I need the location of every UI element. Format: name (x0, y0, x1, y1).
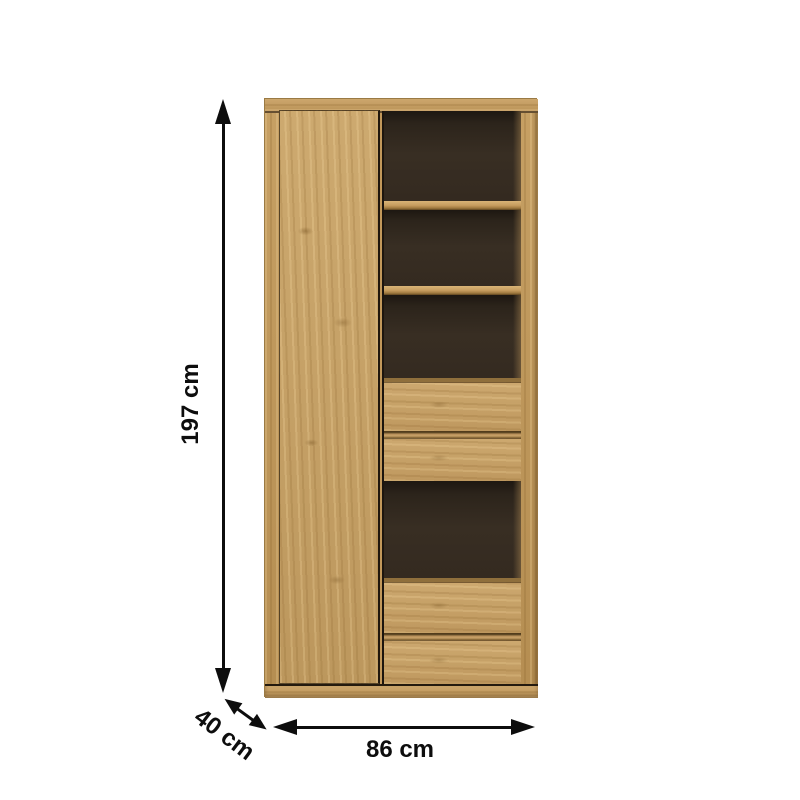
open-shelf-compartment-4 (384, 481, 521, 582)
arrow-line (222, 119, 225, 673)
drawer-gap-2 (384, 633, 521, 640)
drawer-1 (384, 382, 521, 431)
cabinet (264, 98, 537, 697)
arrow-line (291, 726, 517, 729)
drawer-3 (384, 582, 521, 633)
arrowhead-right-icon (511, 719, 535, 735)
cabinet-left-side-panel (265, 99, 279, 698)
product-dimension-diagram: 197 cm 40 cm 86 cm (0, 0, 800, 800)
cabinet-right-column (382, 111, 521, 684)
arrowhead-down-icon (215, 668, 231, 693)
open-shelf-compartment-1 (384, 111, 521, 201)
width-dimension-label: 86 cm (366, 736, 434, 764)
cabinet-right-side-panel (519, 99, 538, 698)
shelf-divider-2 (384, 286, 521, 295)
open-shelf-compartment-2 (384, 210, 521, 286)
drawer-2 (384, 438, 521, 481)
height-dimension-label: 197 cm (177, 363, 205, 444)
cabinet-door (279, 110, 380, 684)
open-shelf-compartment-3 (384, 295, 521, 382)
drawer-gap-1 (384, 431, 521, 438)
cabinet-base-panel (265, 684, 538, 698)
shelf-divider-1 (384, 201, 521, 210)
drawer-4 (384, 640, 521, 684)
height-dimension-arrow-icon (208, 99, 240, 693)
